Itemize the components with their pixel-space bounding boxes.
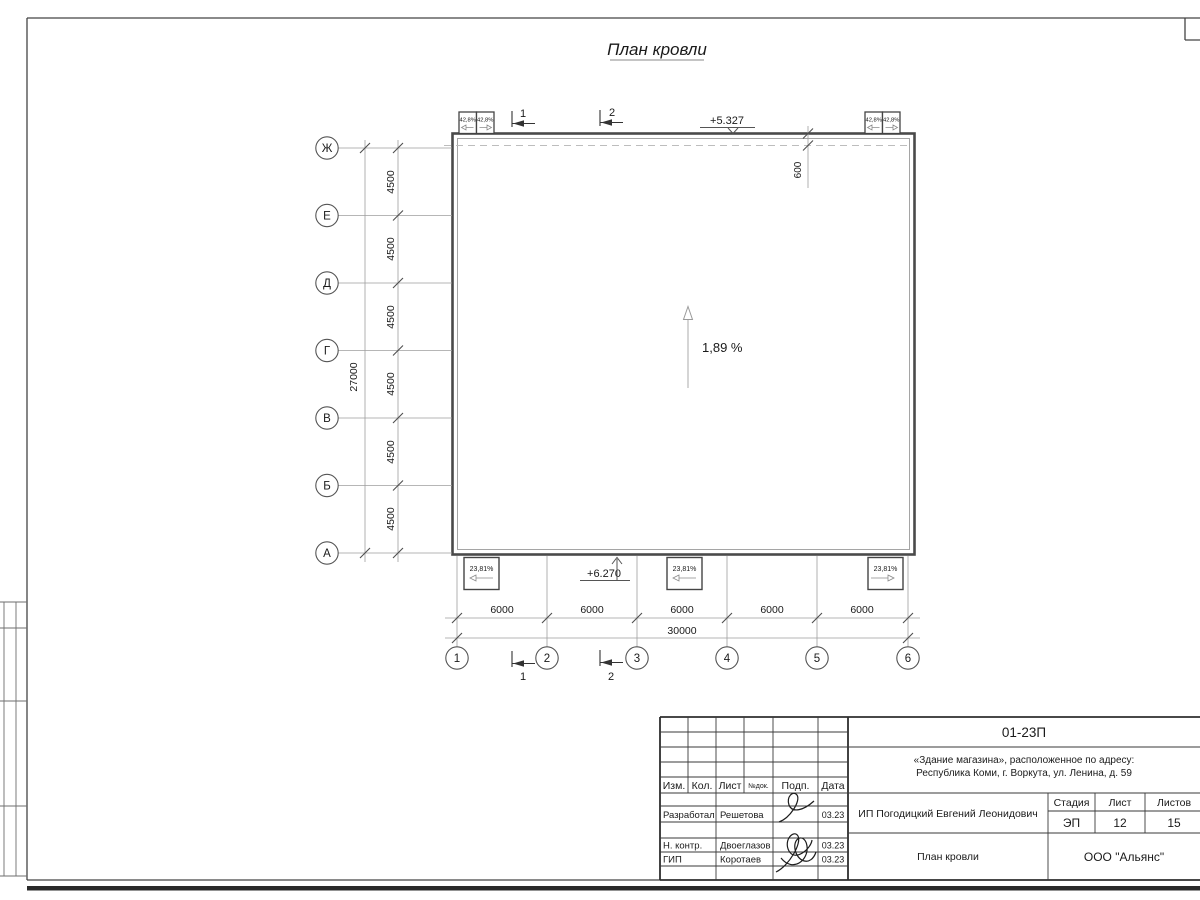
dim-total: 30000 <box>667 625 696 637</box>
elevation-top-text: +5.327 <box>710 115 744 127</box>
dim-text-vertical: 4500 <box>385 305 397 329</box>
axis-label: Г <box>324 346 331 358</box>
signature-name: Коротаев <box>720 855 761 866</box>
overhang-dim-text: 600 <box>793 161 804 178</box>
dim-text-vertical: 4500 <box>385 237 397 261</box>
roof-plan-sheet: План кровли Ж Е Д Г В Б А 4500 4500 4500… <box>0 0 1200 900</box>
eave-slope-markers: 23,81% 23,81% 23,81% <box>464 558 903 590</box>
section-mark-arrow-icon <box>513 120 524 127</box>
sheet-number: 12 <box>1113 816 1127 830</box>
stage-label: Лист <box>1109 797 1132 809</box>
sheets-total: 15 <box>1167 816 1181 830</box>
signature-role: Разработал <box>663 810 715 821</box>
dim-text-vertical: 4500 <box>385 372 397 396</box>
axis-label: Б <box>323 481 331 493</box>
dim-text: 6000 <box>850 604 874 616</box>
stage-value: ЭП <box>1063 816 1080 830</box>
title-block: 01-23П «Здание магазина», расположенное … <box>660 717 1200 880</box>
page-title: План кровли <box>607 40 707 59</box>
column-header: Лист <box>719 780 742 792</box>
slope-box <box>868 558 903 590</box>
axis-label: Д <box>323 278 331 290</box>
dim-text: 6000 <box>490 604 514 616</box>
roof-outer-edge <box>453 134 915 555</box>
drawing-heading: План кровли <box>607 40 707 60</box>
section-number: 2 <box>608 671 614 683</box>
axis-label: Е <box>323 211 331 223</box>
slope-value: 42,8% <box>865 118 881 124</box>
signature-date: 03.23 <box>822 841 845 851</box>
project-address-line2: Республика Коми, г. Воркута, ул. Ленина,… <box>916 767 1132 779</box>
axis-label: А <box>323 548 331 560</box>
stage-label: Листов <box>1157 797 1192 809</box>
column-header: Кол. <box>692 780 713 792</box>
sheet-page: План кровли Ж Е Д Г В Б А 4500 4500 4500… <box>0 0 1200 900</box>
signature-role: Н. контр. <box>663 841 702 852</box>
signature-name: Двоеглазов <box>720 841 771 852</box>
section-mark-arrow-icon <box>601 659 612 666</box>
axis-label: 1 <box>454 653 460 665</box>
section-number: 1 <box>520 671 526 683</box>
client-name: ИП Погодицкий Евгений Леонидович <box>858 808 1037 820</box>
column-header: Подп. <box>782 780 810 792</box>
dim-text: 6000 <box>670 604 694 616</box>
signature-date: 03.23 <box>822 855 845 865</box>
drawing-name: План кровли <box>917 851 979 863</box>
slope-value: 42,8% <box>883 118 899 124</box>
axis-label: Ж <box>322 143 333 155</box>
project-address-line1: «Здание магазина», расположенное по адре… <box>914 755 1135 766</box>
column-header: №док. <box>748 783 769 790</box>
slope-value: 42,8% <box>477 118 493 124</box>
slope-box <box>464 558 499 590</box>
signature-role: ГИП <box>663 855 682 866</box>
section-mark-arrow-icon <box>513 660 524 667</box>
slope-value: 42,8% <box>459 118 475 124</box>
axis-label: 6 <box>905 653 911 665</box>
axis-label: 3 <box>634 653 640 665</box>
axis-label: 5 <box>814 653 820 665</box>
stage-label: Стадия <box>1054 797 1090 809</box>
dim-total-vertical: 27000 <box>348 362 360 391</box>
roof-outline <box>444 134 915 555</box>
axis-label: 2 <box>544 653 550 665</box>
slope-box <box>667 558 702 590</box>
slope-value: 23,81% <box>874 566 898 573</box>
column-header: Дата <box>821 780 844 792</box>
axis-label: В <box>323 413 331 425</box>
slope-value: 23,81% <box>673 566 697 573</box>
section-number: 1 <box>520 108 526 120</box>
dim-text: 6000 <box>760 604 784 616</box>
bottom-axis-grid: 1 2 3 4 5 6 6000 6000 6000 6000 6000 300… <box>446 604 919 669</box>
signature-date: 03.23 <box>822 810 845 820</box>
signature-squiggle <box>779 793 814 822</box>
axis-label: 4 <box>724 653 731 665</box>
section-number: 2 <box>609 107 615 119</box>
dim-text-vertical: 4500 <box>385 170 397 194</box>
company-name: ООО "Альянс" <box>1084 850 1164 864</box>
column-header: Изм. <box>663 780 686 792</box>
main-slope-text: 1,89 % <box>702 340 743 355</box>
doc-number: 01-23П <box>1002 725 1046 740</box>
slope-value: 23,81% <box>470 566 494 573</box>
section-mark-arrow-icon <box>601 119 612 126</box>
signature-name: Решетова <box>720 810 764 821</box>
dim-text-vertical: 4500 <box>385 440 397 464</box>
dim-text: 6000 <box>580 604 604 616</box>
frame-bottom-bar <box>27 886 1200 891</box>
elevation-bottom-text: +6.270 <box>587 568 621 580</box>
left-edge-table <box>0 602 27 876</box>
dim-text-vertical: 4500 <box>385 507 397 531</box>
